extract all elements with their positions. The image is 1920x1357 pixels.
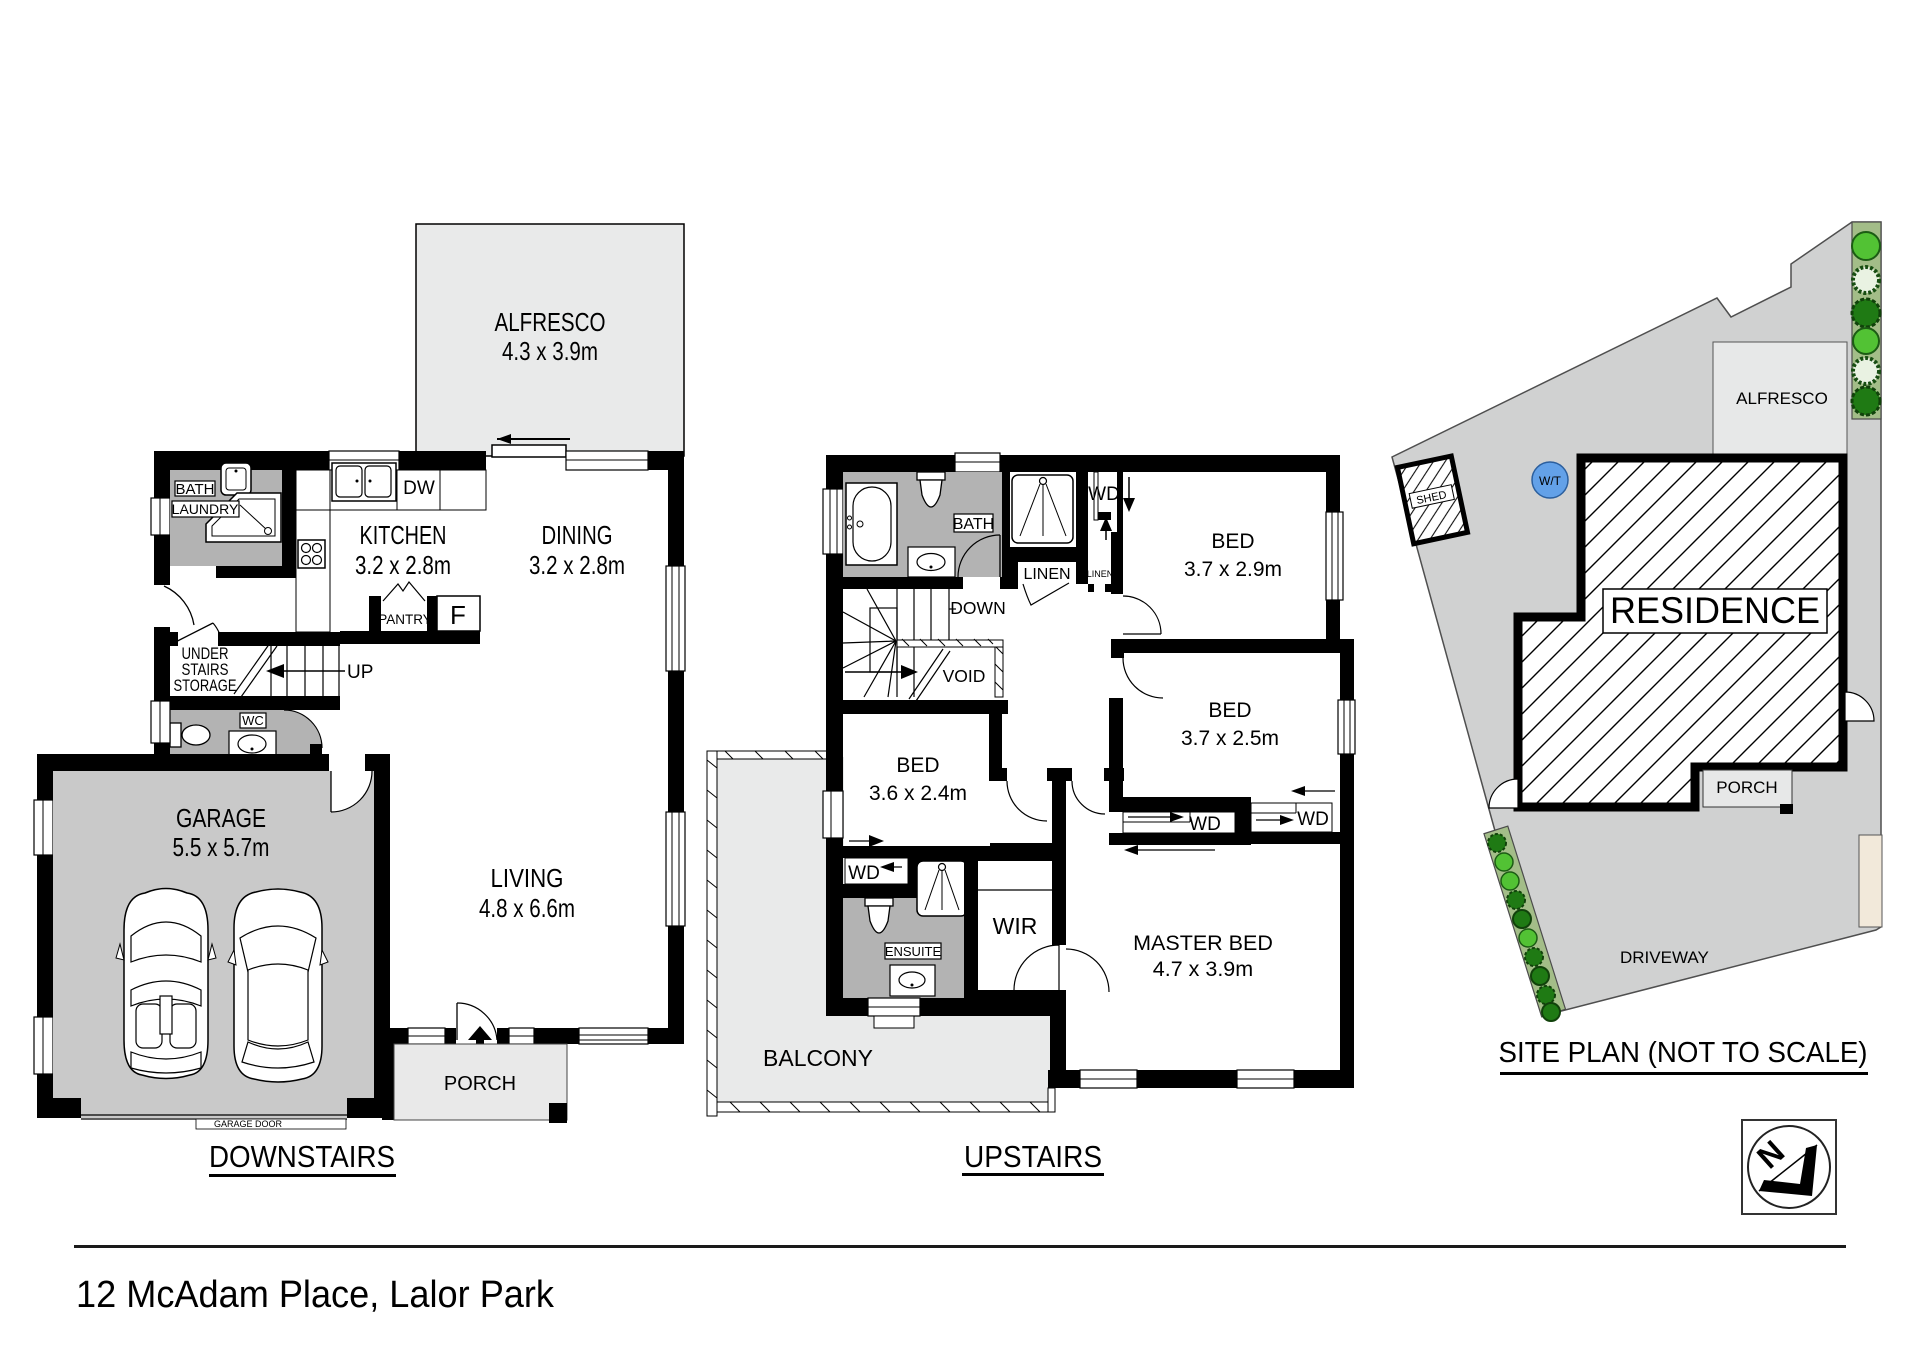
- svg-text:WD: WD: [1189, 814, 1221, 835]
- svg-text:SITE PLAN (NOT TO SCALE): SITE PLAN (NOT TO SCALE): [1499, 1037, 1868, 1069]
- svg-text:BATH: BATH: [176, 481, 215, 498]
- svg-text:STORAGE: STORAGE: [174, 676, 237, 695]
- svg-text:BATH: BATH: [953, 516, 994, 533]
- svg-text:4.7 x 3.9m: 4.7 x 3.9m: [1153, 957, 1253, 981]
- svg-text:DINING: DINING: [542, 520, 613, 550]
- svg-text:3.7 x 2.5m: 3.7 x 2.5m: [1181, 727, 1279, 750]
- svg-text:LINEN: LINEN: [1023, 566, 1070, 583]
- svg-text:RESIDENCE: RESIDENCE: [1610, 590, 1820, 631]
- svg-text:12 McAdam Place, Lalor Park: 12 McAdam Place, Lalor Park: [76, 1274, 555, 1316]
- svg-text:5.5 x 5.7m: 5.5 x 5.7m: [173, 832, 270, 862]
- svg-text:PORCH: PORCH: [444, 1073, 516, 1095]
- svg-text:F: F: [450, 600, 466, 630]
- svg-text:3.6 x 2.4m: 3.6 x 2.4m: [869, 782, 967, 805]
- svg-text:3.2 x 2.8m: 3.2 x 2.8m: [529, 550, 625, 580]
- svg-text:WD: WD: [1088, 484, 1120, 505]
- svg-text:BED: BED: [896, 754, 939, 777]
- svg-text:WD: WD: [848, 863, 880, 884]
- svg-text:WD: WD: [1297, 809, 1329, 830]
- svg-text:VOID: VOID: [943, 666, 986, 686]
- svg-text:ENSUITE: ENSUITE: [885, 944, 942, 959]
- svg-text:3.7 x 2.9m: 3.7 x 2.9m: [1184, 558, 1282, 581]
- svg-text:LINEN: LINEN: [1087, 569, 1114, 579]
- svg-text:4.8 x 6.6m: 4.8 x 6.6m: [479, 893, 575, 923]
- svg-text:UPSTAIRS: UPSTAIRS: [964, 1139, 1102, 1174]
- svg-text:BED: BED: [1208, 699, 1251, 722]
- svg-text:DOWNSTAIRS: DOWNSTAIRS: [209, 1139, 395, 1174]
- svg-text:PANTRY: PANTRY: [378, 612, 432, 627]
- svg-text:MASTER BED: MASTER BED: [1133, 931, 1273, 955]
- svg-text:DRIVEWAY: DRIVEWAY: [1620, 948, 1709, 967]
- svg-text:ALFRESCO: ALFRESCO: [1736, 389, 1828, 408]
- svg-text:ALFRESCO: ALFRESCO: [495, 307, 606, 337]
- svg-text:PORCH: PORCH: [1716, 778, 1777, 797]
- svg-text:KITCHEN: KITCHEN: [360, 520, 447, 550]
- svg-text:LAUNDRY: LAUNDRY: [172, 501, 239, 517]
- svg-text:LIVING: LIVING: [491, 863, 564, 893]
- svg-text:GARAGE DOOR: GARAGE DOOR: [214, 1119, 283, 1129]
- svg-text:4.3 x 3.9m: 4.3 x 3.9m: [502, 336, 598, 366]
- svg-text:3.2 x 2.8m: 3.2 x 2.8m: [355, 550, 451, 580]
- svg-text:WC: WC: [242, 713, 264, 728]
- svg-text:DOWN: DOWN: [950, 598, 1005, 618]
- svg-text:WIR: WIR: [993, 913, 1038, 939]
- svg-text:UP: UP: [347, 662, 373, 683]
- svg-text:GARAGE: GARAGE: [176, 803, 266, 833]
- svg-text:DW: DW: [403, 478, 435, 499]
- svg-text:BALCONY: BALCONY: [763, 1045, 873, 1071]
- svg-text:BED: BED: [1211, 530, 1254, 553]
- svg-text:W/T: W/T: [1539, 474, 1562, 488]
